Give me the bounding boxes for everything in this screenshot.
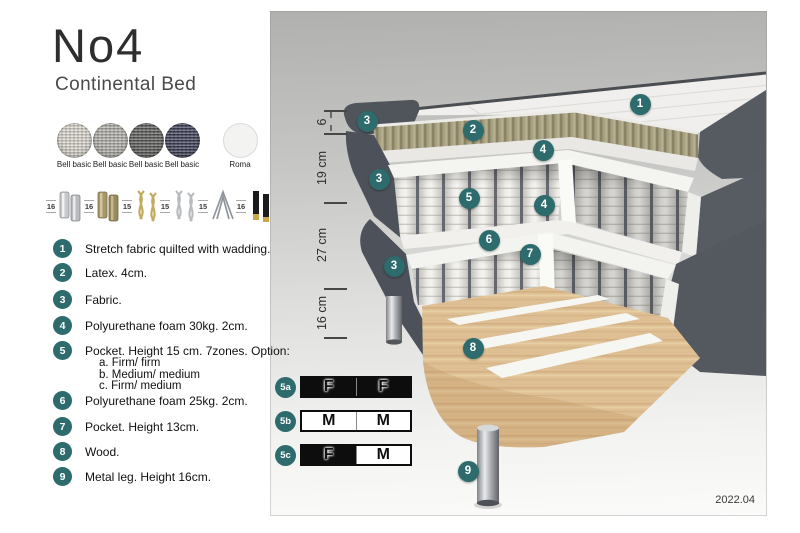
fabric-swatch (57, 123, 92, 158)
callout-badge: 3 (357, 111, 378, 132)
leg-height: 15 (160, 200, 170, 213)
dimension-label: 6 (315, 118, 329, 125)
callout-badge: 4 (534, 195, 555, 216)
leg-option: 15 (198, 188, 237, 224)
leg-height: 16 (84, 200, 94, 213)
version-label: 2022.04 (660, 494, 755, 506)
leg-height: 16 (46, 200, 56, 213)
fabric-swatch (165, 123, 200, 158)
feature-item: 7Pocket. Height 13cm. (53, 417, 199, 436)
dimension-bar (330, 112, 332, 118)
dimension-bar (330, 125, 332, 131)
feature-item: 3Fabric. (53, 290, 122, 309)
leg-option: 16 (84, 188, 123, 224)
callout-badge: 5 (459, 188, 480, 209)
firmness-row-badge: 5b (275, 411, 296, 432)
dimension-tick (324, 110, 347, 112)
feature-item: 4Polyurethane foam 30kg. 2cm. (53, 316, 248, 335)
feature-number-badge: 4 (53, 316, 72, 335)
dimension-label: 27 cm (315, 228, 329, 262)
firmness-row-badge: 5c (275, 445, 296, 466)
feature-text: Metal leg. Height 16cm. (85, 470, 211, 484)
dimension-tick (324, 288, 347, 290)
feature-text: Stretch fabric quilted with wadding. (85, 242, 270, 256)
dimension-label: 16 cm (315, 295, 329, 329)
feature-number-badge: 6 (53, 391, 72, 410)
leg-height: 16 (236, 200, 246, 213)
feature-text: Pocket. Height 13cm. (85, 420, 199, 434)
feature-text: Fabric. (85, 293, 122, 307)
leg-option: 16 (236, 188, 275, 224)
leg-icon-twist-gold (133, 188, 161, 224)
feature-number-badge: 5 (53, 341, 72, 360)
leg-icon-cylinder-chrome (57, 188, 85, 224)
firmness-bar: FF (300, 376, 412, 398)
firmness-row: 5aFF (275, 376, 412, 398)
dimension-tick (324, 337, 347, 339)
leg-icon-black-gold (247, 188, 275, 224)
leg-height: 15 (198, 200, 208, 213)
feature-item: 8Wood. (53, 442, 119, 461)
product-subtitle: Continental Bed (55, 74, 196, 96)
firmness-cell: M (356, 446, 411, 464)
dimension-tick (324, 202, 347, 204)
callout-badge: 6 (479, 230, 500, 251)
callout-badge: 1 (630, 94, 651, 115)
callout-badge: 3 (369, 169, 390, 190)
feature-number-badge: 3 (53, 290, 72, 309)
feature-text: Wood. (85, 445, 119, 459)
feature-number-badge: 8 (53, 442, 72, 461)
leg-icon-hairpin (209, 188, 237, 224)
callout-badge: 4 (533, 140, 554, 161)
callout-badge: 9 (458, 461, 479, 482)
callout-badge: 2 (463, 120, 484, 141)
page: No4 Continental Bed Bell basicMCD36Bell … (0, 0, 800, 533)
feature-text: Polyurethane foam 25kg. 2cm. (85, 394, 248, 408)
fabric-swatch (223, 123, 258, 158)
feature-item: 9Metal leg. Height 16cm. (53, 467, 211, 486)
firmness-row: 5bMM (275, 410, 412, 432)
product-title: No4 (52, 18, 144, 73)
feature-number-badge: 7 (53, 417, 72, 436)
feature-number-badge: 2 (53, 263, 72, 282)
leg-icon-twist-silver (171, 188, 199, 224)
dimension-label: 19 cm (315, 150, 329, 184)
leg-option: 16 (46, 188, 85, 224)
fabric-swatch-label: Romastretch fabric (211, 160, 269, 169)
feature-number-badge: 1 (53, 239, 72, 258)
feature-text: Pocket. Height 15 cm. 7zones. Option: (85, 344, 290, 358)
feature-item: 1Stretch fabric quilted with wadding. (53, 239, 270, 258)
firmness-bar: FM (300, 444, 412, 466)
firmness-cell: F (302, 446, 356, 464)
leg-option: 15 (122, 188, 161, 224)
firmness-row-badge: 5a (275, 377, 296, 398)
illustration-panel (270, 11, 767, 516)
firmness-cell: F (302, 378, 356, 396)
firmness-bar: MM (300, 410, 412, 432)
feature-option: a. Firm/ firm (99, 357, 160, 369)
callout-badge: 7 (520, 244, 541, 265)
fabric-swatch-label: Bell basicMCD74 (153, 160, 211, 169)
leg-height: 15 (122, 200, 132, 213)
leg-option: 15 (160, 188, 199, 224)
feature-text: Polyurethane foam 30kg. 2cm. (85, 319, 248, 333)
feature-item: 6Polyurethane foam 25kg. 2cm. (53, 391, 248, 410)
callout-badge: 8 (463, 338, 484, 359)
firmness-row: 5cFM (275, 444, 412, 466)
leg-icon-cylinder-brass (95, 188, 123, 224)
callout-badge: 3 (384, 256, 405, 277)
feature-number-badge: 9 (53, 467, 72, 486)
firmness-cell: M (302, 412, 356, 430)
feature-text: Latex. 4cm. (85, 266, 147, 280)
firmness-cell: M (356, 412, 411, 430)
fabric-swatch (93, 123, 128, 158)
firmness-cell: F (356, 378, 411, 396)
feature-item: 2Latex. 4cm. (53, 263, 147, 282)
feature-item: 5Pocket. Height 15 cm. 7zones. Option: (53, 341, 290, 360)
dimension-tick (324, 133, 347, 135)
feature-option: b. Medium/ medium (99, 369, 200, 381)
fabric-swatch (129, 123, 164, 158)
